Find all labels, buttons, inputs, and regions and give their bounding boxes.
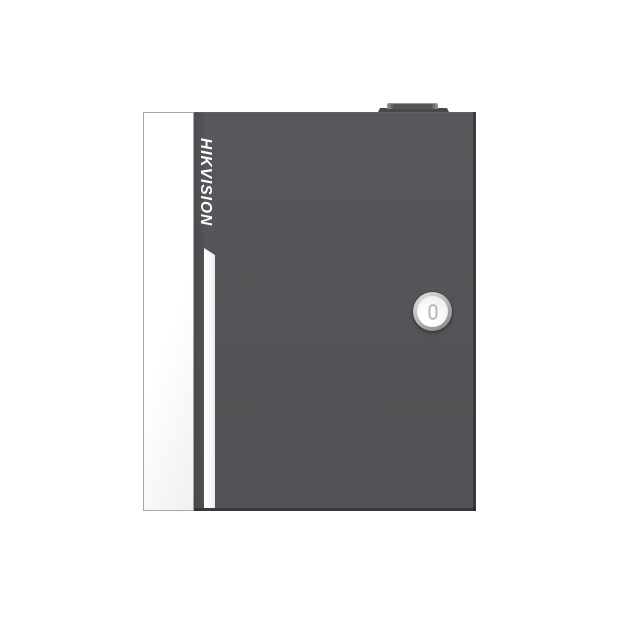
accent-stripe bbox=[204, 248, 215, 508]
door-edge-panel bbox=[143, 112, 194, 511]
lock-face bbox=[417, 296, 448, 327]
keyhole-icon bbox=[428, 304, 437, 320]
enclosure-box: HIKVISION bbox=[143, 112, 476, 511]
cam-lock bbox=[413, 292, 452, 331]
top-latch-knob bbox=[387, 103, 438, 109]
brand-logo: HIKVISION bbox=[195, 138, 215, 258]
product-photo: HIKVISION bbox=[0, 0, 620, 620]
front-door: HIKVISION bbox=[194, 112, 476, 511]
